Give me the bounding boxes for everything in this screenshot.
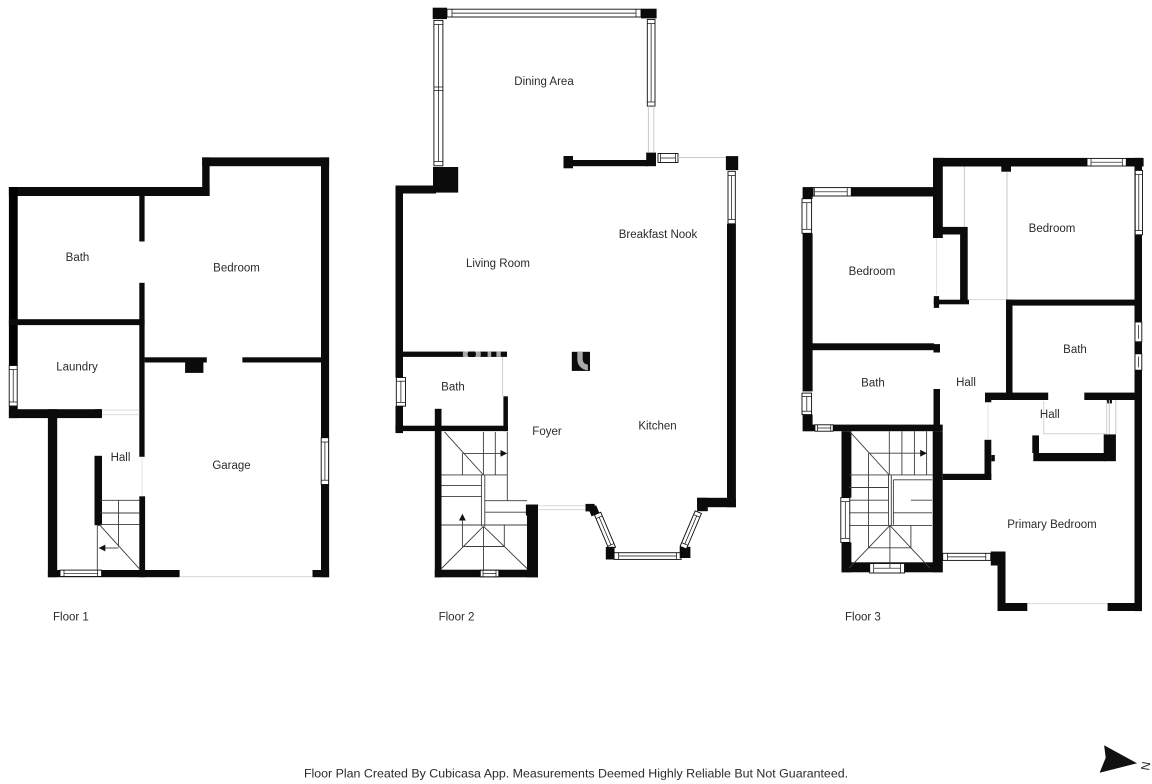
svg-text:Bath: Bath xyxy=(441,382,465,394)
svg-text:Living Room: Living Room xyxy=(466,258,530,270)
svg-text:Breakfast Nook: Breakfast Nook xyxy=(619,229,698,241)
svg-text:Bath: Bath xyxy=(861,378,885,390)
svg-text:Kitchen: Kitchen xyxy=(638,421,676,433)
svg-text:Foyer: Foyer xyxy=(532,426,562,438)
svg-text:Hall: Hall xyxy=(956,377,976,389)
svg-text:Dining Area: Dining Area xyxy=(514,76,574,88)
svg-text:Laundry: Laundry xyxy=(56,362,98,374)
svg-text:Garage: Garage xyxy=(212,460,250,472)
svg-text:Bedroom: Bedroom xyxy=(1029,223,1076,235)
svg-text:Bath: Bath xyxy=(1063,344,1087,356)
svg-text:Floor 2: Floor 2 xyxy=(439,612,475,624)
svg-text:Floor 1: Floor 1 xyxy=(53,612,89,624)
svg-text:Hall: Hall xyxy=(111,452,131,464)
svg-text:Primary Bedroom: Primary Bedroom xyxy=(1007,519,1096,531)
svg-text:Bath: Bath xyxy=(66,252,90,264)
svg-text:Bedroom: Bedroom xyxy=(849,266,896,278)
svg-text:Bedroom: Bedroom xyxy=(213,263,260,275)
svg-text:Floor Plan Created By Cubicasa: Floor Plan Created By Cubicasa App. Meas… xyxy=(304,766,848,780)
svg-text:Floor 3: Floor 3 xyxy=(845,612,881,624)
svg-text:Hall: Hall xyxy=(1040,409,1060,421)
